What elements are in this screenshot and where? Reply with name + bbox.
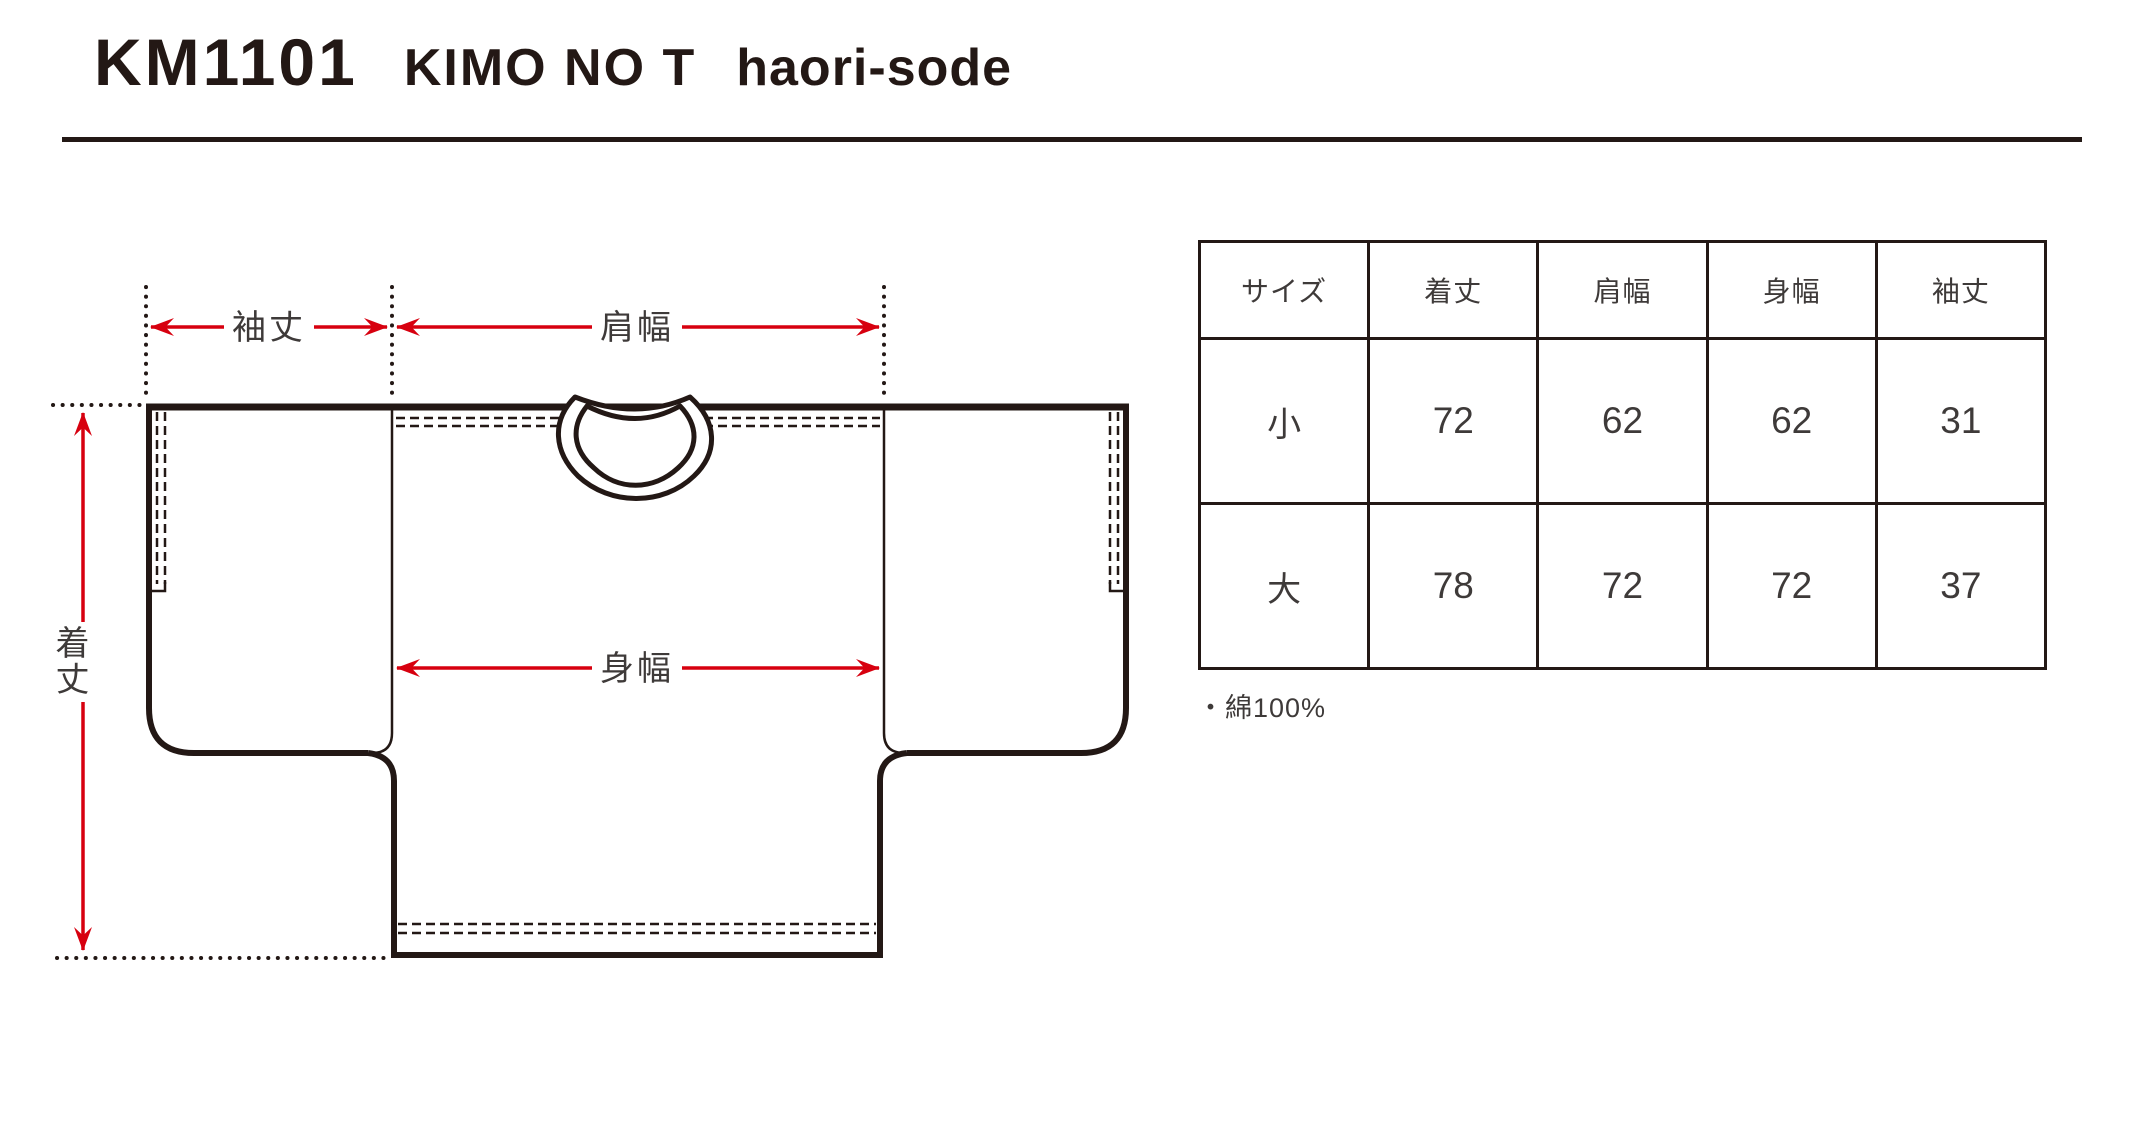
- table-row-small: 小 72 62 62 31: [1200, 339, 2046, 504]
- large-body-width: 72: [1707, 504, 1876, 669]
- small-body-length: 72: [1369, 339, 1538, 504]
- large-shoulder-width: 72: [1538, 504, 1707, 669]
- measurement-arrows: [83, 327, 879, 950]
- left-underarm: [368, 753, 394, 953]
- guide-lines: [53, 287, 884, 958]
- material-note: ・綿100%: [1197, 686, 1326, 725]
- col-header-sleeve-length: 袖丈: [1876, 242, 2045, 339]
- col-header-body-width: 身幅: [1707, 242, 1876, 339]
- left-sleeve-opening-stitch: [150, 412, 165, 591]
- body-width-label: 身幅: [600, 650, 674, 688]
- hem-stitch: [398, 924, 876, 933]
- shoulder-width-label: 肩幅: [600, 309, 674, 347]
- col-header-size: サイズ: [1200, 242, 1369, 339]
- small-body-width: 62: [1707, 339, 1876, 504]
- small-sleeve-length: 31: [1876, 339, 2045, 504]
- size-label-large: 大: [1200, 504, 1369, 669]
- col-header-body-length: 着丈: [1369, 242, 1538, 339]
- table-row-large: 大 78 72 72 37: [1200, 504, 2046, 669]
- large-sleeve-length: 37: [1876, 504, 2045, 669]
- size-label-small: 小: [1200, 339, 1369, 504]
- spec-sheet-page: KM1101 KIMO NO T haori-sode: [0, 0, 2143, 1128]
- large-body-length: 78: [1369, 504, 1538, 669]
- col-header-shoulder-width: 肩幅: [1538, 242, 1707, 339]
- right-underarm: [880, 753, 907, 953]
- left-sleeve-outline: [149, 405, 368, 753]
- sleeve-length-label: 袖丈: [232, 309, 306, 347]
- small-shoulder-width: 62: [1538, 339, 1707, 504]
- body-seam-left: [372, 407, 392, 753]
- size-table: サイズ 着丈 肩幅 身幅 袖丈 小 72 62 62 31 大 78 72 72…: [1198, 240, 2047, 670]
- right-sleeve-opening-stitch: [1110, 412, 1125, 591]
- size-table-header-row: サイズ 着丈 肩幅 身幅 袖丈: [1200, 242, 2046, 339]
- body-length-label: 着丈: [56, 625, 93, 699]
- body-seam-right: [884, 407, 904, 753]
- right-sleeve-outline: [907, 405, 1126, 753]
